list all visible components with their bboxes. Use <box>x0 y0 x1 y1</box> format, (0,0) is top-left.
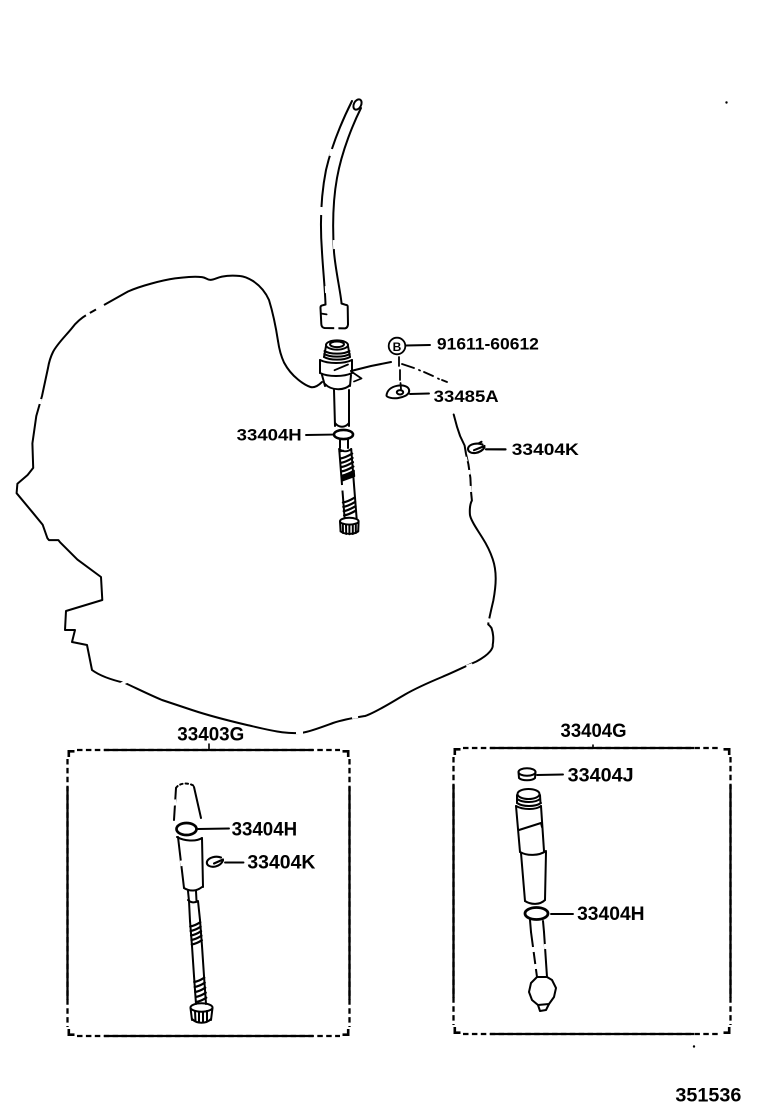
svg-text:351536: 351536 <box>675 1084 741 1106</box>
svg-text:B: B <box>393 340 402 354</box>
svg-text:33404H: 33404H <box>577 903 645 925</box>
svg-text:33404K: 33404K <box>512 440 580 459</box>
svg-text:91611-60612: 91611-60612 <box>437 335 539 354</box>
svg-text:33404H: 33404H <box>232 819 298 841</box>
svg-text:33404K: 33404K <box>247 852 315 874</box>
svg-text:33403G: 33403G <box>177 724 244 746</box>
svg-text:33404J: 33404J <box>568 765 634 787</box>
svg-text:33404G: 33404G <box>561 720 627 742</box>
svg-text:33485A: 33485A <box>434 387 499 406</box>
svg-text:33404H: 33404H <box>237 425 302 444</box>
